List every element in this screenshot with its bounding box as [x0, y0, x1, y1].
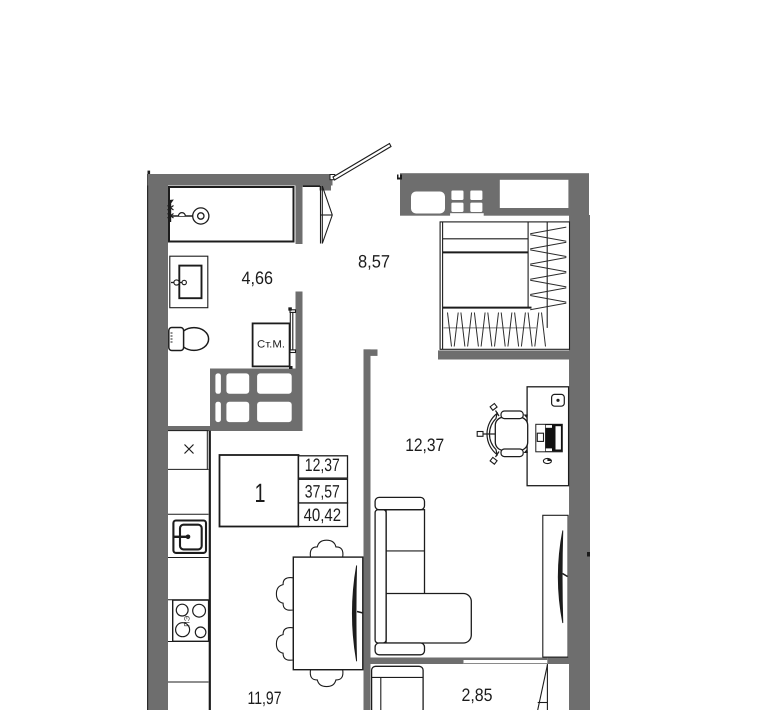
svg-text:12,37: 12,37 [405, 435, 444, 455]
svg-text:1: 1 [255, 478, 266, 508]
svg-text:4,66: 4,66 [242, 268, 274, 288]
svg-text:11,97: 11,97 [248, 688, 282, 708]
svg-text:40,42: 40,42 [304, 505, 342, 525]
svg-text:8,57: 8,57 [358, 251, 390, 271]
svg-text:37,57: 37,57 [305, 481, 340, 501]
svg-text:12,37: 12,37 [305, 455, 340, 475]
svg-text:2,85: 2,85 [462, 685, 493, 705]
svg-text:ПЭ: ПЭ [183, 615, 192, 626]
svg-text:Ст.М.: Ст.М. [257, 338, 285, 350]
